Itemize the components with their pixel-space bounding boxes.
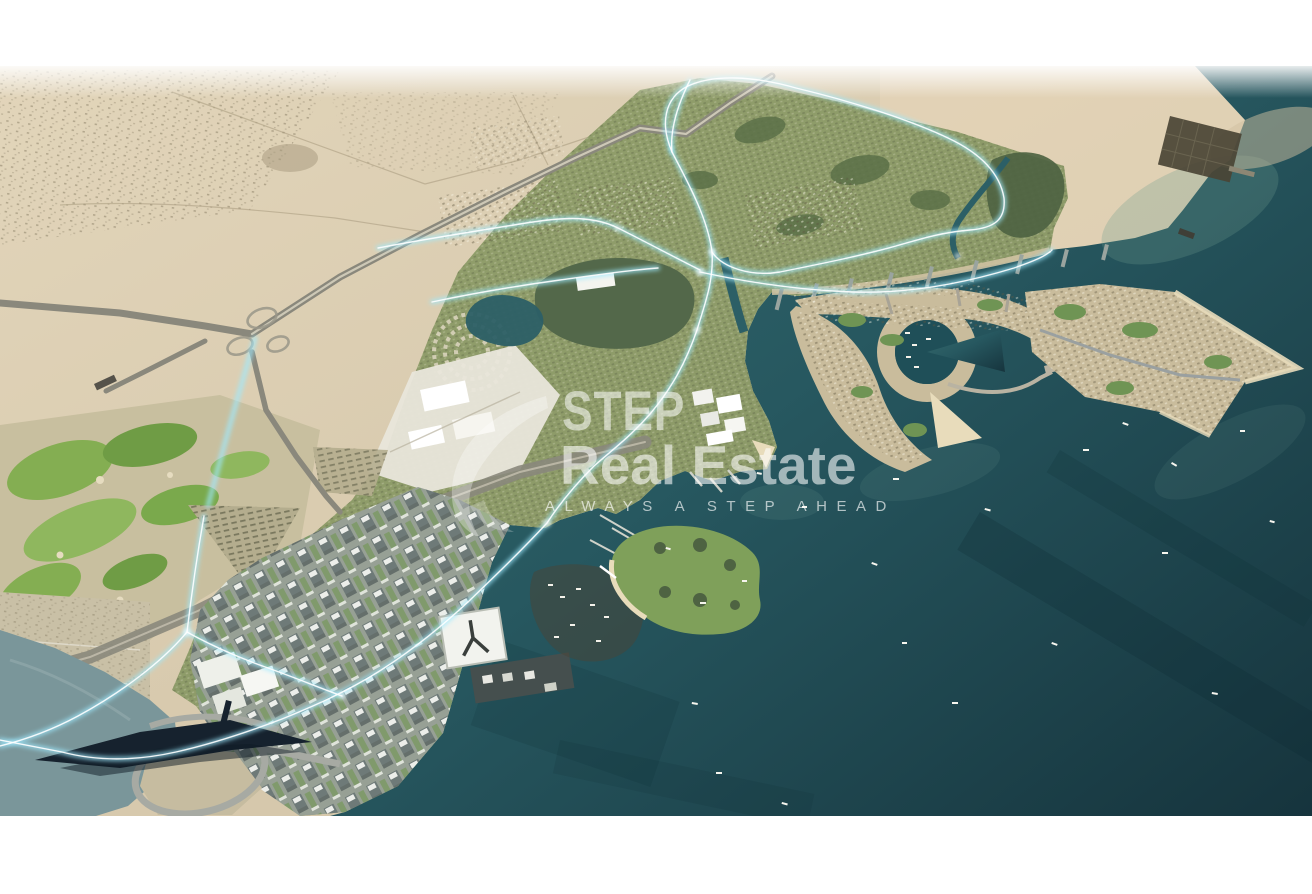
aerial-masterplan-image: STEP Real Estate ALWAYS A STEP AHEAD xyxy=(0,0,1312,894)
desert-dark-patch xyxy=(262,144,318,172)
photo xyxy=(0,62,1312,827)
masterplan-scene xyxy=(0,0,1312,894)
photo-top-fade xyxy=(0,62,1312,98)
